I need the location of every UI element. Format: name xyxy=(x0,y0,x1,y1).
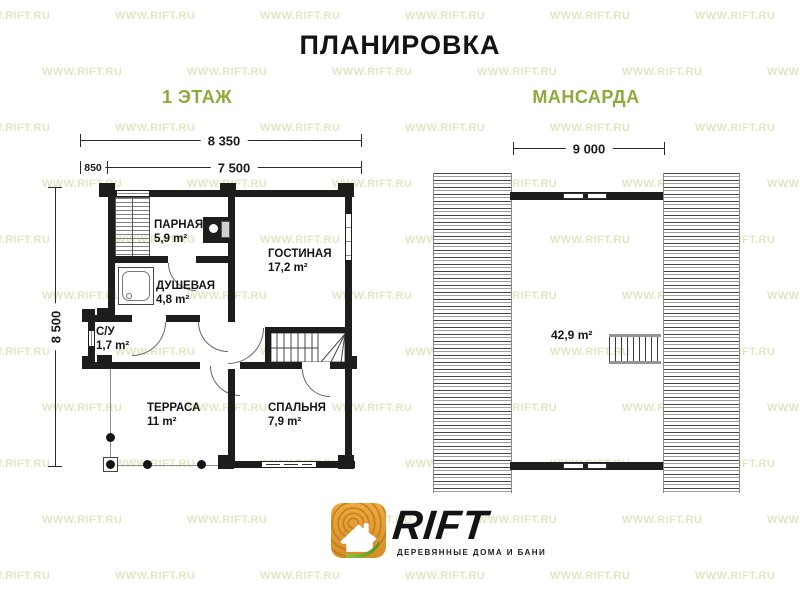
log-end xyxy=(99,183,115,197)
watermark-text: WWW.RIFT.RU xyxy=(260,234,340,246)
watermark-text: WWW.RIFT.RU xyxy=(695,122,775,134)
staircase-attic xyxy=(609,334,661,364)
wall-segment xyxy=(196,256,232,263)
wall-segment xyxy=(228,197,235,322)
watermark-text: WWW.RIFT.RU xyxy=(550,570,630,582)
watermark-text: WWW.RIFT.RU xyxy=(767,514,800,526)
wall-segment xyxy=(240,362,302,369)
watermark-text: WWW.RIFT.RU xyxy=(115,122,195,134)
room-label-terrasa: ТЕРРАСА11 m² xyxy=(147,402,200,429)
page-title: ПЛАНИРОВКА xyxy=(300,30,501,61)
watermark-text: WWW.RIFT.RU xyxy=(695,10,775,22)
watermark-text: WWW.RIFT.RU xyxy=(622,66,702,78)
watermark-text: WWW.RIFT.RU xyxy=(0,234,50,246)
log-end xyxy=(218,455,234,469)
watermark-text: WWW.RIFT.RU xyxy=(550,122,630,134)
watermark-text: WWW.RIFT.RU xyxy=(695,570,775,582)
logo-tagline-text: ДЕРЕВЯННЫЕ ДОМА И БАНИ xyxy=(397,548,546,557)
rift-logo-icon xyxy=(331,503,386,558)
watermark-text: WWW.RIFT.RU xyxy=(405,570,485,582)
window-mullion xyxy=(583,194,588,198)
floor1-label: 1 ЭТАЖ xyxy=(162,87,232,108)
terrace-post xyxy=(197,460,206,469)
log-end xyxy=(97,355,112,369)
sauna-bench xyxy=(115,197,150,258)
terrace-edge xyxy=(110,368,111,466)
watermark-text: WWW.RIFT.RU xyxy=(767,178,800,190)
watermark-text: WWW.RIFT.RU xyxy=(187,66,267,78)
watermark-text: WWW.RIFT.RU xyxy=(767,290,800,302)
attic-label: МАНСАРДА xyxy=(532,87,639,108)
watermark-text: WWW.RIFT.RU xyxy=(115,10,195,22)
window xyxy=(117,191,149,196)
terrace-post xyxy=(143,460,152,469)
watermark-text: WWW.RIFT.RU xyxy=(477,66,557,78)
room-label-gostinaya: ГОСТИНАЯ17,2 m² xyxy=(268,248,332,275)
log-end xyxy=(82,356,95,369)
log-end xyxy=(82,309,95,322)
rift-logo: RIFT ДЕРЕВЯННЫЕ ДОМА И БАНИ xyxy=(331,503,546,558)
room-label-spalnya: СПАЛЬНЯ7,9 m² xyxy=(268,402,326,429)
wall-segment xyxy=(228,369,235,461)
staircase-floor1 xyxy=(271,333,345,362)
watermark-text: WWW.RIFT.RU xyxy=(115,570,195,582)
log-end xyxy=(338,183,354,197)
logo-brand-text: RIFT xyxy=(391,503,549,547)
watermark-text: WWW.RIFT.RU xyxy=(550,234,630,246)
watermark-text: WWW.RIFT.RU xyxy=(42,514,122,526)
watermark-text: WWW.RIFT.RU xyxy=(187,514,267,526)
room-label-parnaya: ПАРНАЯ5,9 m² xyxy=(154,219,203,246)
dim-attic-value: 9 000 xyxy=(566,142,613,157)
floor-plan-page: WWW.RIFT.RUWWW.RIFT.RUWWW.RIFT.RUWWW.RIF… xyxy=(0,0,800,591)
watermark-text: WWW.RIFT.RU xyxy=(0,346,50,358)
log-end xyxy=(338,455,354,469)
log-end xyxy=(220,183,236,197)
watermark-text: WWW.RIFT.RU xyxy=(260,122,340,134)
room-label-dushevaya: ДУШЕВАЯ4,8 m² xyxy=(156,280,215,307)
watermark-text: WWW.RIFT.RU xyxy=(550,10,630,22)
log-end xyxy=(346,356,357,369)
watermark-text: WWW.RIFT.RU xyxy=(0,122,50,134)
dim-total-width-value: 8 350 xyxy=(201,134,248,149)
watermark-text: WWW.RIFT.RU xyxy=(767,66,800,78)
wall-segment xyxy=(108,256,168,263)
watermark-text: WWW.RIFT.RU xyxy=(405,10,485,22)
window xyxy=(346,214,351,260)
watermark-text: WWW.RIFT.RU xyxy=(0,458,50,470)
roof-slope-hatch xyxy=(433,173,512,493)
room-label-su: С/У1,7 m² xyxy=(96,326,129,353)
dim-main-value: 7 500 xyxy=(211,161,258,176)
log-end xyxy=(97,308,112,322)
dim-side-value: 8 500 xyxy=(49,304,64,351)
window xyxy=(89,331,94,346)
room-label-attic-area: 42,9 m² xyxy=(551,329,592,343)
wall-segment xyxy=(166,315,200,322)
terrace-post xyxy=(106,433,115,442)
watermark-text: WWW.RIFT.RU xyxy=(405,122,485,134)
watermark-text: WWW.RIFT.RU xyxy=(0,10,50,22)
terrace-edge xyxy=(104,465,232,466)
dim-terrace-value: 850 xyxy=(81,162,105,174)
window-mullion xyxy=(266,464,312,465)
terrace-post xyxy=(106,460,115,469)
watermark-text: WWW.RIFT.RU xyxy=(115,458,195,470)
watermark-text: WWW.RIFT.RU xyxy=(767,402,800,414)
watermark-text: WWW.RIFT.RU xyxy=(622,514,702,526)
watermark-text: WWW.RIFT.RU xyxy=(260,10,340,22)
watermark-text: WWW.RIFT.RU xyxy=(0,570,50,582)
window-mullion xyxy=(583,464,588,468)
roof-slope-hatch xyxy=(663,173,740,493)
watermark-text: WWW.RIFT.RU xyxy=(42,66,122,78)
watermark-text: WWW.RIFT.RU xyxy=(332,66,412,78)
watermark-text: WWW.RIFT.RU xyxy=(260,570,340,582)
